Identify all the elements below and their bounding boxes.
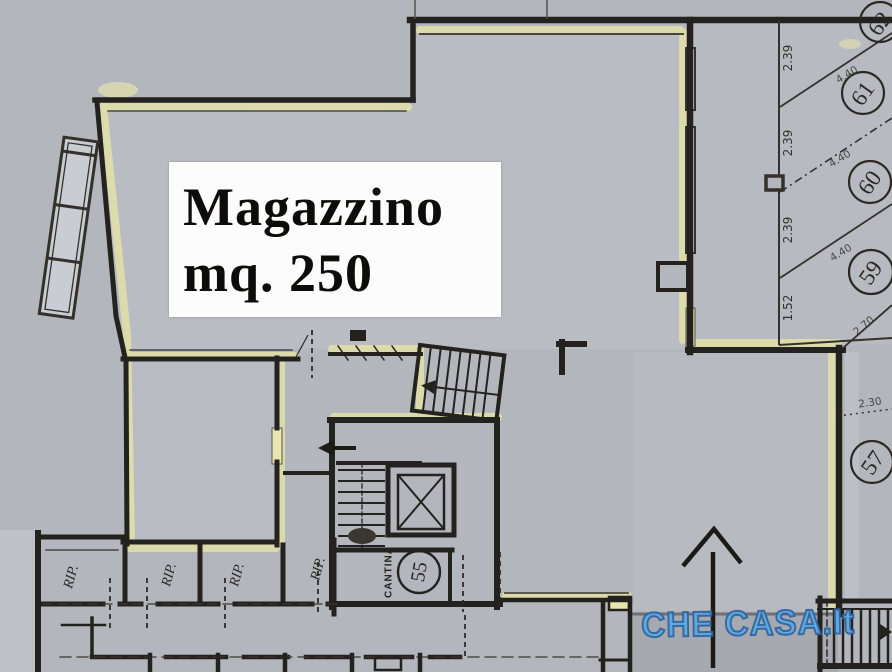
floor-plan-drawing (0, 0, 892, 672)
cantina-label: CANTINA (384, 546, 395, 598)
stall-width-dim: 2.39 (781, 45, 795, 72)
unit-label-box: Magazzino mq. 250 (169, 162, 501, 317)
cantina-number: 55 (407, 560, 433, 584)
watermark-logo: CHE CASA.It (641, 602, 855, 646)
upper-stairs (412, 345, 504, 421)
bay-windows (39, 137, 97, 318)
unit-label-line2: mq. 250 (183, 240, 501, 306)
storage-rooms (38, 533, 630, 672)
floor-plan-page: Magazzino mq. 250 62 61 60 59 57 2.39 2.… (0, 0, 892, 672)
direction-arrow-left (318, 440, 356, 456)
unit-label-line1: Magazzino (183, 174, 501, 240)
stall-width-dim: 2.39 (781, 217, 795, 244)
stall-width-dim: 1.52 (781, 295, 795, 322)
stall-width-dim: 2.39 (781, 130, 795, 157)
